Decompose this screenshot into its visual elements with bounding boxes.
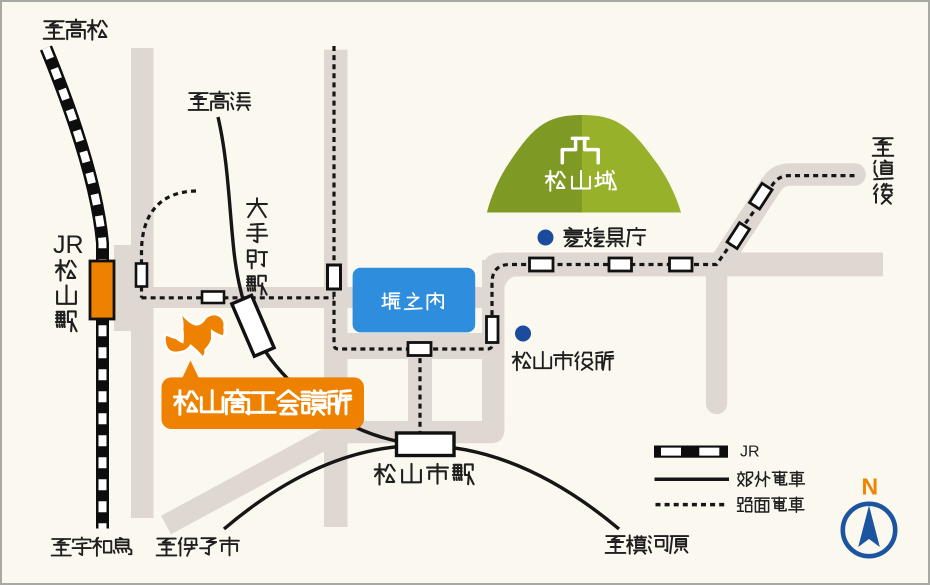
svg-text:JR: JR (53, 231, 84, 259)
svg-text:JR: JR (740, 444, 760, 461)
svg-text:N: N (862, 474, 879, 500)
